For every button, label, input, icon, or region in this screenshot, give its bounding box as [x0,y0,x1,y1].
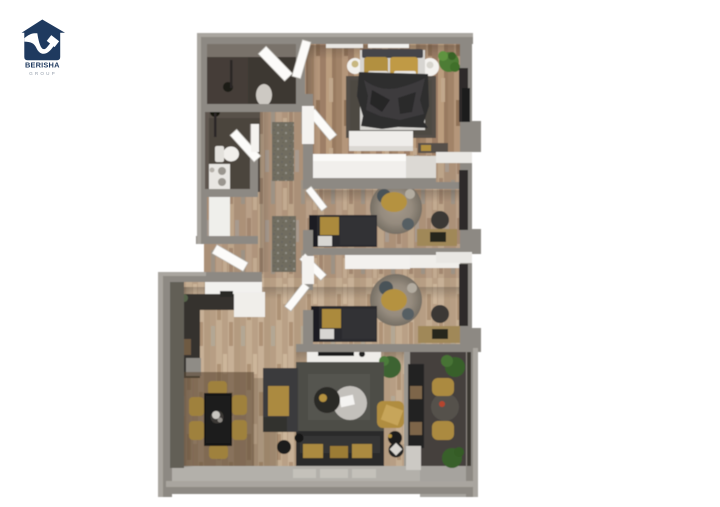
svg-text:GROUP: GROUP [29,71,57,76]
svg-text:BERISHA: BERISHA [25,60,60,69]
